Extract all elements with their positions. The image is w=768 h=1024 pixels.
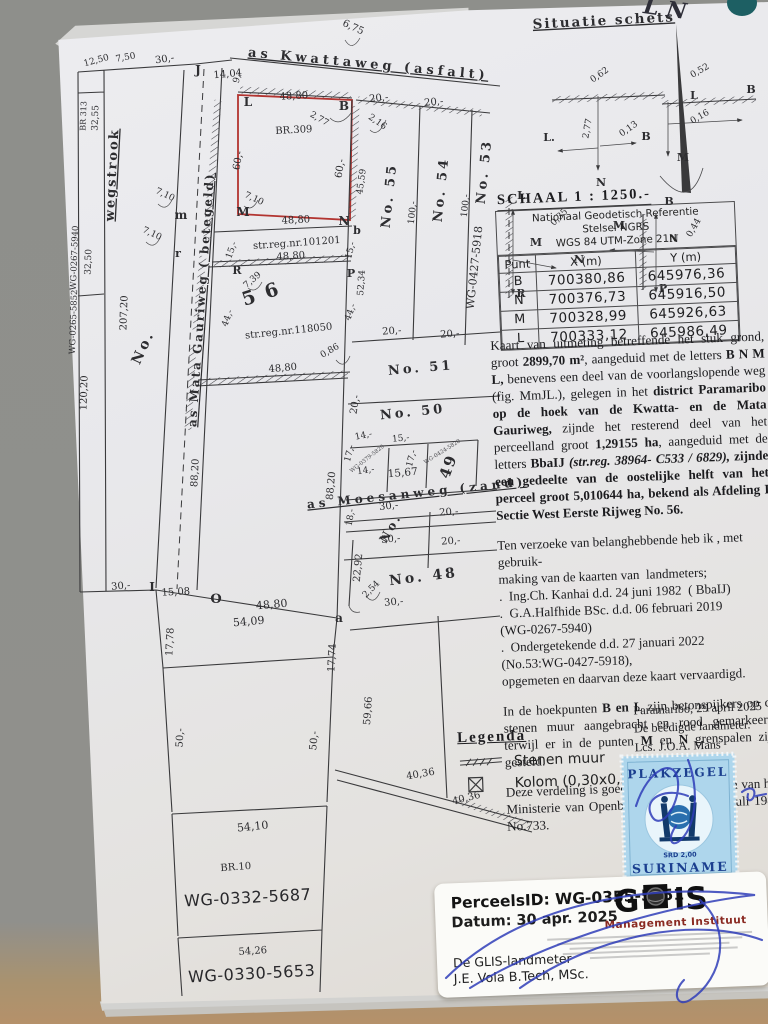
map-label: No. 55 bbox=[379, 162, 401, 229]
map-label: No. bbox=[129, 328, 159, 367]
map-label: 22,92 bbox=[352, 553, 365, 582]
map-label: 14,- bbox=[356, 465, 375, 477]
map-label: 20,- bbox=[369, 92, 389, 105]
legend-label: Stenen muur bbox=[514, 750, 605, 769]
stenen-muur-symbol bbox=[458, 755, 504, 771]
map-label: 207,20 bbox=[118, 295, 130, 330]
glis-landmeter-name: J.E. Vola B.Tech, MSc. bbox=[453, 967, 589, 987]
legend: Legenda Stenen muur Kolom (0,30x0,30) bbox=[457, 724, 644, 799]
map-label: 20,- bbox=[424, 96, 444, 109]
map-label: B bbox=[339, 99, 349, 113]
map-label: 30,- bbox=[111, 580, 131, 593]
map-label: B bbox=[746, 83, 755, 96]
map-label: 60,- bbox=[333, 158, 347, 179]
legend-item-kolom: Kolom (0,30x0,30) bbox=[458, 771, 644, 793]
map-label: b bbox=[353, 224, 361, 237]
map-label: WG-0330-5653 bbox=[188, 961, 316, 987]
map-label: WG-0265-5852 bbox=[68, 289, 80, 354]
point-name: M bbox=[501, 309, 539, 330]
fine-print-lines bbox=[544, 928, 755, 964]
map-label: 2,16 bbox=[366, 113, 388, 133]
map-label: 52,34 bbox=[356, 269, 368, 296]
mata-gauriweg-street bbox=[156, 68, 222, 590]
point-name: B bbox=[499, 271, 537, 292]
map-label: 30,- bbox=[379, 500, 399, 513]
map-label: No. 50 bbox=[379, 402, 446, 424]
map-label: 15,08 bbox=[161, 586, 190, 598]
map-label: No. 51 bbox=[387, 358, 454, 379]
map-label: 40,36 bbox=[406, 767, 436, 783]
map-label: O bbox=[210, 592, 221, 607]
map-label: 48,80 bbox=[268, 362, 297, 375]
map-label: 48,80 bbox=[276, 250, 305, 263]
map-label: 7,10 bbox=[141, 225, 164, 243]
map-label: 48,80 bbox=[279, 90, 308, 102]
map-label: 32,55 bbox=[91, 105, 102, 131]
map-label: I bbox=[149, 580, 155, 594]
map-label: 20,- bbox=[440, 328, 460, 340]
map-label: 15,- bbox=[224, 240, 239, 260]
photo-of-survey-document: { "situatie": { "title": "Situatie schet… bbox=[0, 0, 768, 1024]
map-label: 0,16 bbox=[689, 108, 712, 127]
map-label: M bbox=[677, 151, 689, 164]
map-label: 50,- bbox=[308, 731, 321, 751]
map-label: BR.10 bbox=[220, 861, 251, 874]
map-label: 54,10 bbox=[236, 818, 269, 834]
map-label: 7,50 bbox=[115, 51, 137, 64]
svg-text:G: G bbox=[613, 883, 640, 917]
map-label: 30,- bbox=[154, 53, 175, 67]
signoff-block: Paramaribo, 29 april 2025 De beëdigde la… bbox=[633, 697, 768, 757]
sticker-date: Datum: 30 apr. 2025 bbox=[451, 909, 618, 931]
coordinate-table: Nationaal Geodetisch Referentie Stelsel … bbox=[495, 201, 741, 351]
map-label: P bbox=[347, 267, 355, 280]
map-label: 18,- bbox=[345, 508, 358, 527]
map-label: 32,50 bbox=[84, 249, 95, 275]
map-label: 20,- bbox=[348, 394, 362, 415]
stamp-value: SRD 2,00 bbox=[663, 851, 697, 860]
wegstrook-frame bbox=[78, 64, 196, 592]
map-label: 48,80 bbox=[281, 214, 310, 226]
map-label: 54,09 bbox=[232, 614, 265, 630]
map-label: 17,74 bbox=[326, 643, 338, 672]
map-label: 60,- bbox=[231, 150, 245, 171]
map-label: 17,78 bbox=[164, 627, 176, 656]
map-label: 20,- bbox=[439, 506, 459, 518]
map-label: WG-0332-5687 bbox=[184, 885, 312, 911]
map-label: r bbox=[175, 247, 181, 260]
map-label: 54,26 bbox=[238, 945, 267, 958]
map-label: wegstrook bbox=[103, 128, 123, 223]
map-label: 44,- bbox=[220, 308, 235, 328]
map-label: 120,20 bbox=[78, 375, 90, 410]
map-label: 12,50 bbox=[83, 53, 111, 69]
map-label: 20,- bbox=[441, 535, 461, 547]
map-label: L bbox=[244, 95, 253, 109]
glis-logo-icon: G IS bbox=[599, 878, 750, 918]
svg-text:IS: IS bbox=[673, 881, 708, 918]
map-label: 0,86 bbox=[319, 342, 342, 361]
map-label: 88,20 bbox=[189, 458, 201, 487]
map-label: No. 48 bbox=[388, 565, 459, 589]
map-label: as Kwattaweg (asfalt) bbox=[247, 45, 489, 83]
map-label: L. bbox=[543, 131, 555, 144]
glis-logo: G IS Management Instituut bbox=[594, 878, 756, 932]
map-label: 30,- bbox=[384, 596, 404, 609]
map-label: 100,- bbox=[407, 201, 419, 225]
map-label: R bbox=[232, 264, 242, 277]
map-label: 59,66 bbox=[362, 696, 375, 725]
map-label: 15,- bbox=[344, 241, 358, 260]
map-label: 15,67 bbox=[387, 466, 418, 481]
map-label: a bbox=[335, 611, 343, 625]
map-label: as Moesanweg (zand) bbox=[306, 475, 527, 512]
map-label: 0,13 bbox=[618, 119, 640, 139]
legal-paragraph: Ten verzoeke van belanghebbende heb ik ,… bbox=[497, 527, 768, 690]
map-label: J bbox=[194, 63, 201, 77]
map-label: 2,77 bbox=[581, 118, 594, 140]
map-label: 30,- bbox=[381, 533, 401, 546]
kolom-symbol bbox=[458, 776, 505, 794]
map-label: No. 53 bbox=[474, 138, 496, 205]
map-label: str.reg.nr.101201 bbox=[253, 235, 341, 252]
plakzegel-stamp: PLAKZEGEL SRD 2,00 SURINAME bbox=[619, 751, 739, 883]
map-label: M bbox=[236, 205, 249, 219]
map-label: N bbox=[339, 214, 350, 228]
map-label: 50,- bbox=[175, 728, 187, 748]
map-label: m bbox=[175, 208, 188, 222]
parcel-east-wall bbox=[352, 106, 356, 220]
map-label: 6,75 bbox=[341, 18, 366, 37]
map-label: as Mata Gauriweg ( betegeld) bbox=[185, 172, 217, 427]
map-label: 48,80 bbox=[255, 597, 288, 613]
map-label: 7,10 bbox=[154, 186, 177, 204]
map-label: BR.309 bbox=[275, 124, 313, 137]
map-label: 17,- bbox=[343, 444, 357, 463]
glis-sticker: PerceelsID: WG-0355-5951 Datum: 30 apr. … bbox=[434, 871, 768, 998]
map-label: No. 54 bbox=[431, 156, 453, 223]
map-label: 0,62 bbox=[589, 66, 611, 86]
map-label: 100,- bbox=[460, 194, 472, 218]
map-label: str.reg.nr.118050 bbox=[245, 321, 333, 341]
map-label: 15,- bbox=[392, 433, 410, 445]
map-label: 0,52 bbox=[689, 62, 711, 81]
map-label: 2,54 bbox=[361, 579, 382, 600]
map-label: BR 313 bbox=[78, 101, 88, 131]
situatie-sketch-2 bbox=[662, 99, 756, 156]
map-label: 14,- bbox=[354, 429, 373, 442]
point-name: N bbox=[500, 290, 538, 311]
map-label: B bbox=[641, 130, 650, 143]
map-label: 20,- bbox=[382, 325, 402, 337]
stamp-title: PLAKZEGEL bbox=[627, 765, 728, 782]
map-label: 9,- bbox=[232, 71, 245, 85]
legal-paragraph: Kaart van uitmeting betreffende het stuk… bbox=[490, 327, 768, 524]
map-label: 45,59 bbox=[355, 168, 369, 195]
map-label: L bbox=[690, 89, 698, 102]
legend-item-stenen-muur: Stenen muur bbox=[458, 749, 644, 771]
north-arrow-icon bbox=[660, 24, 703, 193]
